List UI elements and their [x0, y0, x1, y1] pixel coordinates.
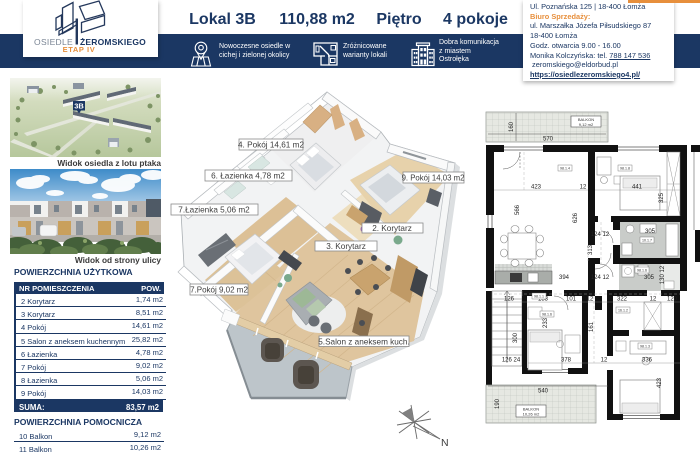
svg-text:441: 441 — [632, 185, 643, 191]
svg-text:124 12: 124 12 — [591, 275, 610, 281]
svg-text:2. Korytarz: 2. Korytarz — [372, 224, 412, 233]
svg-text:12: 12 — [587, 297, 594, 303]
svg-text:98.1.1: 98.1.1 — [534, 295, 544, 299]
svg-text:6. Łazienka 4,78 m2: 6. Łazienka 4,78 m2 — [211, 172, 285, 181]
svg-text:300: 300 — [513, 332, 519, 343]
svg-text:98.1.8: 98.1.8 — [620, 167, 630, 171]
svg-text:98.1.6: 98.1.6 — [637, 269, 647, 273]
svg-text:9. Pokój 14,03 m2: 9. Pokój 14,03 m2 — [402, 174, 465, 183]
svg-text:9,12 m2: 9,12 m2 — [579, 122, 594, 127]
svg-text:394: 394 — [559, 275, 570, 281]
svg-text:10,26 m2: 10,26 m2 — [523, 412, 540, 417]
svg-text:10.1.7: 10.1.7 — [642, 239, 652, 243]
svg-text:313: 313 — [588, 244, 594, 255]
svg-text:626: 626 — [573, 212, 579, 223]
svg-text:5.Salon z aneksem kuch.: 5.Salon z aneksem kuch. — [318, 338, 409, 347]
svg-text:126: 126 — [504, 297, 515, 303]
svg-text:322: 322 — [617, 297, 628, 303]
svg-text:98.1.6: 98.1.6 — [542, 313, 552, 317]
svg-text:305: 305 — [644, 275, 655, 281]
svg-text:566: 566 — [515, 204, 521, 215]
svg-text:7.Łazienka 5,06 m2: 7.Łazienka 5,06 m2 — [178, 206, 250, 215]
svg-text:12: 12 — [650, 297, 657, 303]
svg-text:3. Korytarz: 3. Korytarz — [326, 242, 366, 251]
svg-text:305: 305 — [645, 229, 656, 235]
svg-text:101: 101 — [566, 297, 577, 303]
svg-text:N: N — [441, 437, 449, 449]
svg-text:570: 570 — [543, 137, 554, 143]
svg-text:423: 423 — [531, 185, 542, 191]
svg-text:160: 160 — [509, 121, 515, 132]
svg-text:4. Pokój 14,61 m2: 4. Pokój 14,61 m2 — [238, 141, 304, 150]
svg-text:378: 378 — [561, 358, 572, 364]
svg-text:233: 233 — [543, 317, 549, 328]
svg-text:336: 336 — [642, 358, 653, 364]
svg-text:325: 325 — [659, 192, 665, 203]
svg-text:190: 190 — [495, 398, 501, 409]
svg-text:7.Pokój 9,02 m2: 7.Pokój 9,02 m2 — [190, 286, 248, 295]
svg-text:12: 12 — [580, 185, 587, 191]
svg-text:540: 540 — [538, 389, 549, 395]
svg-text:16.1.2: 16.1.2 — [618, 309, 628, 313]
svg-text:124 12: 124 12 — [591, 232, 610, 238]
svg-text:3B: 3B — [74, 102, 84, 111]
svg-text:12: 12 — [601, 358, 608, 364]
svg-text:98.1.4: 98.1.4 — [560, 167, 570, 171]
svg-text:130 12: 130 12 — [660, 265, 666, 284]
svg-text:98.1.3: 98.1.3 — [640, 345, 650, 349]
svg-text:126 24: 126 24 — [502, 358, 521, 364]
svg-text:423: 423 — [657, 377, 663, 388]
svg-text:120: 120 — [667, 297, 678, 303]
